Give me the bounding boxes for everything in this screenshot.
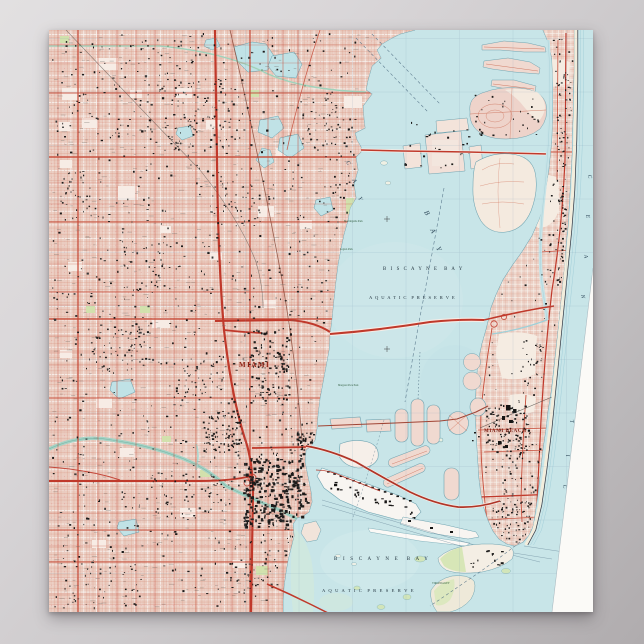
svg-text:VIRGINIA KEY: VIRGINIA KEY — [432, 582, 450, 585]
svg-text:Margaret Pace Park: Margaret Pace Park — [338, 384, 359, 387]
svg-text:Legion Park: Legion Park — [340, 248, 353, 251]
svg-text:A Q U A T I C P R E S E R V E: A Q U A T I C P R E S E R V E — [369, 295, 456, 300]
svg-text:Morningside Park: Morningside Park — [344, 220, 363, 223]
svg-text:MIAMI: MIAMI — [239, 361, 270, 369]
svg-text:MIAMI BEACH: MIAMI BEACH — [484, 429, 527, 434]
svg-text:B I S C A Y N E B A Y: B I S C A Y N E B A Y — [334, 557, 430, 562]
svg-text:B I S C A Y N E B A Y: B I S C A Y N E B A Y — [383, 267, 464, 272]
svg-text:A Q U A T I C P R E S E R V E: A Q U A T I C P R E S E R V E — [322, 588, 415, 593]
